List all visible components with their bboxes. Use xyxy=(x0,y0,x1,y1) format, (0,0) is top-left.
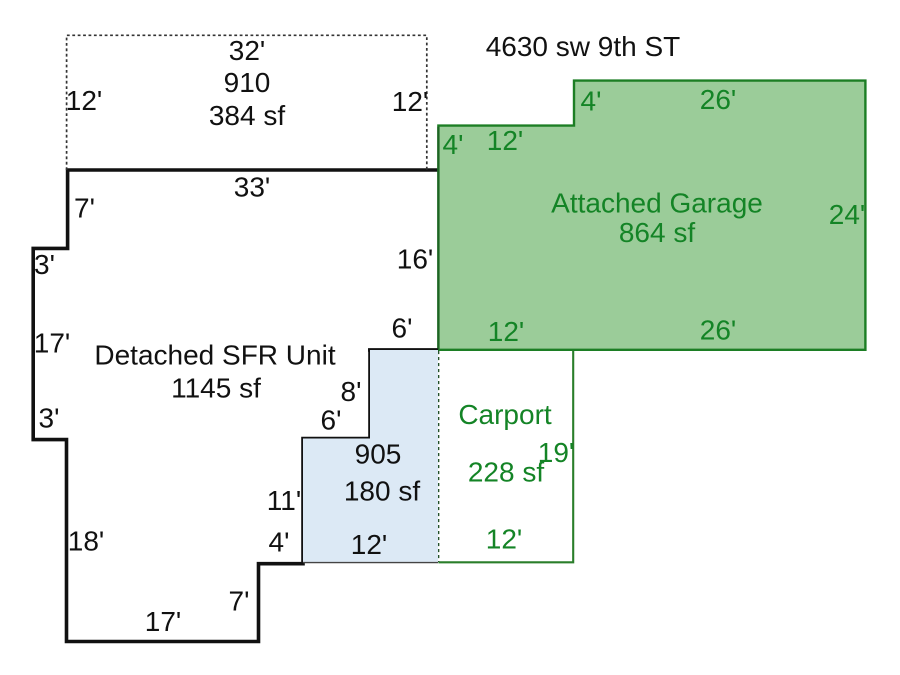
svg-text:Carport: Carport xyxy=(458,399,552,430)
svg-text:4': 4' xyxy=(443,129,464,160)
svg-text:16': 16' xyxy=(397,244,434,275)
svg-text:4': 4' xyxy=(269,527,290,558)
svg-text:12': 12' xyxy=(487,125,524,156)
svg-text:228 sf: 228 sf xyxy=(468,457,544,488)
svg-text:3': 3' xyxy=(34,249,55,280)
svg-text:Detached SFR Unit: Detached SFR Unit xyxy=(94,340,335,371)
svg-text:864 sf: 864 sf xyxy=(619,217,695,248)
svg-text:12': 12' xyxy=(66,85,103,116)
svg-text:33': 33' xyxy=(234,172,271,203)
svg-text:6': 6' xyxy=(392,313,413,344)
svg-text:19': 19' xyxy=(538,437,575,468)
svg-text:4': 4' xyxy=(581,86,602,117)
svg-text:26': 26' xyxy=(700,315,737,346)
svg-text:12': 12' xyxy=(486,524,523,555)
svg-text:905: 905 xyxy=(355,439,402,470)
svg-text:180 sf: 180 sf xyxy=(344,476,420,507)
svg-text:Attached Garage: Attached Garage xyxy=(551,188,763,219)
svg-text:4630 sw 9th ST: 4630 sw 9th ST xyxy=(486,31,681,62)
svg-text:6': 6' xyxy=(321,405,342,436)
svg-text:1145 sf: 1145 sf xyxy=(171,373,261,404)
svg-text:32': 32' xyxy=(229,35,266,66)
svg-text:12': 12' xyxy=(351,529,388,560)
svg-text:7': 7' xyxy=(74,193,95,224)
svg-text:12': 12' xyxy=(488,316,525,347)
svg-text:7': 7' xyxy=(229,586,250,617)
svg-text:18': 18' xyxy=(68,526,105,557)
svg-text:384 sf: 384 sf xyxy=(209,100,285,131)
svg-text:12': 12' xyxy=(392,86,429,117)
svg-text:17': 17' xyxy=(145,606,182,637)
svg-text:17': 17' xyxy=(34,328,71,359)
svg-text:910: 910 xyxy=(224,67,271,98)
svg-text:24': 24' xyxy=(829,199,866,230)
svg-text:3': 3' xyxy=(39,403,60,434)
svg-text:8': 8' xyxy=(341,376,362,407)
svg-text:11': 11' xyxy=(267,485,301,516)
svg-text:26': 26' xyxy=(700,84,737,115)
